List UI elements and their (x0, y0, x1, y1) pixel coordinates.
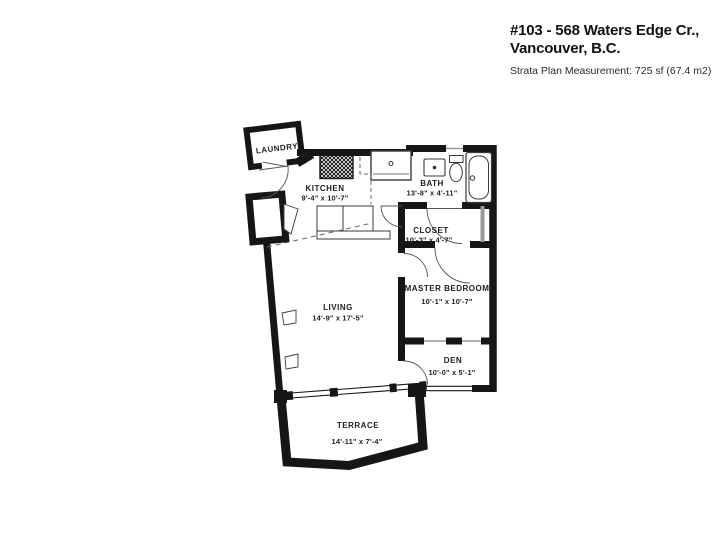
room-label-terrace: TERRACE (337, 421, 379, 430)
wall-sill (282, 310, 296, 325)
doors (259, 166, 470, 385)
refrigerator (371, 151, 411, 180)
room-dims-terrace: 14'-11" x 7'-4" (332, 437, 383, 446)
room-label-kitchen: KITCHEN (305, 184, 344, 193)
entry-closet-door (284, 204, 298, 234)
room-label-closet: CLOSET (413, 226, 448, 235)
den-window (426, 386, 472, 390)
room-dims-den: 10'-0" x 5'-1" (428, 368, 475, 377)
room-dims-master-bedroom: 10'-1" x 10'-7" (421, 297, 473, 306)
master-closet-door-arc (435, 248, 470, 283)
room-dims-closet: 10'-3" x 4'-7" (405, 236, 452, 245)
room-label-bath: BATH (420, 179, 444, 188)
room-dims-living: 14'-9" x 17'-5" (312, 314, 364, 323)
room-label-den: DEN (444, 356, 462, 365)
bathtub (466, 153, 492, 203)
bath-window (446, 144, 463, 153)
toilet (450, 156, 464, 182)
room-label-living: LIVING (323, 303, 353, 312)
room-label-laundry: LAUNDRY (255, 141, 298, 155)
stove (320, 155, 353, 179)
bath-sink (424, 159, 445, 176)
room-label-master-bedroom: MASTER BEDROOM (405, 284, 490, 293)
living-window-wall (278, 380, 427, 401)
room-dims-bath: 13'-8" x 4'-11" (407, 189, 458, 198)
closet-side-window (481, 206, 485, 242)
den-door-arc (404, 361, 428, 385)
wall-sill (285, 354, 298, 369)
kitchen-counter (317, 206, 390, 239)
room-dims-kitchen: 9'-4" x 10'-7" (301, 194, 348, 203)
entry-closet-walls (249, 194, 286, 242)
master-door-arc (404, 254, 428, 278)
room-labels: LAUNDRY KITCHEN 9'-4" x 10'-7" BATH 13'-… (255, 141, 489, 446)
floor-plan: LAUNDRY KITCHEN 9'-4" x 10'-7" BATH 13'-… (0, 0, 720, 556)
